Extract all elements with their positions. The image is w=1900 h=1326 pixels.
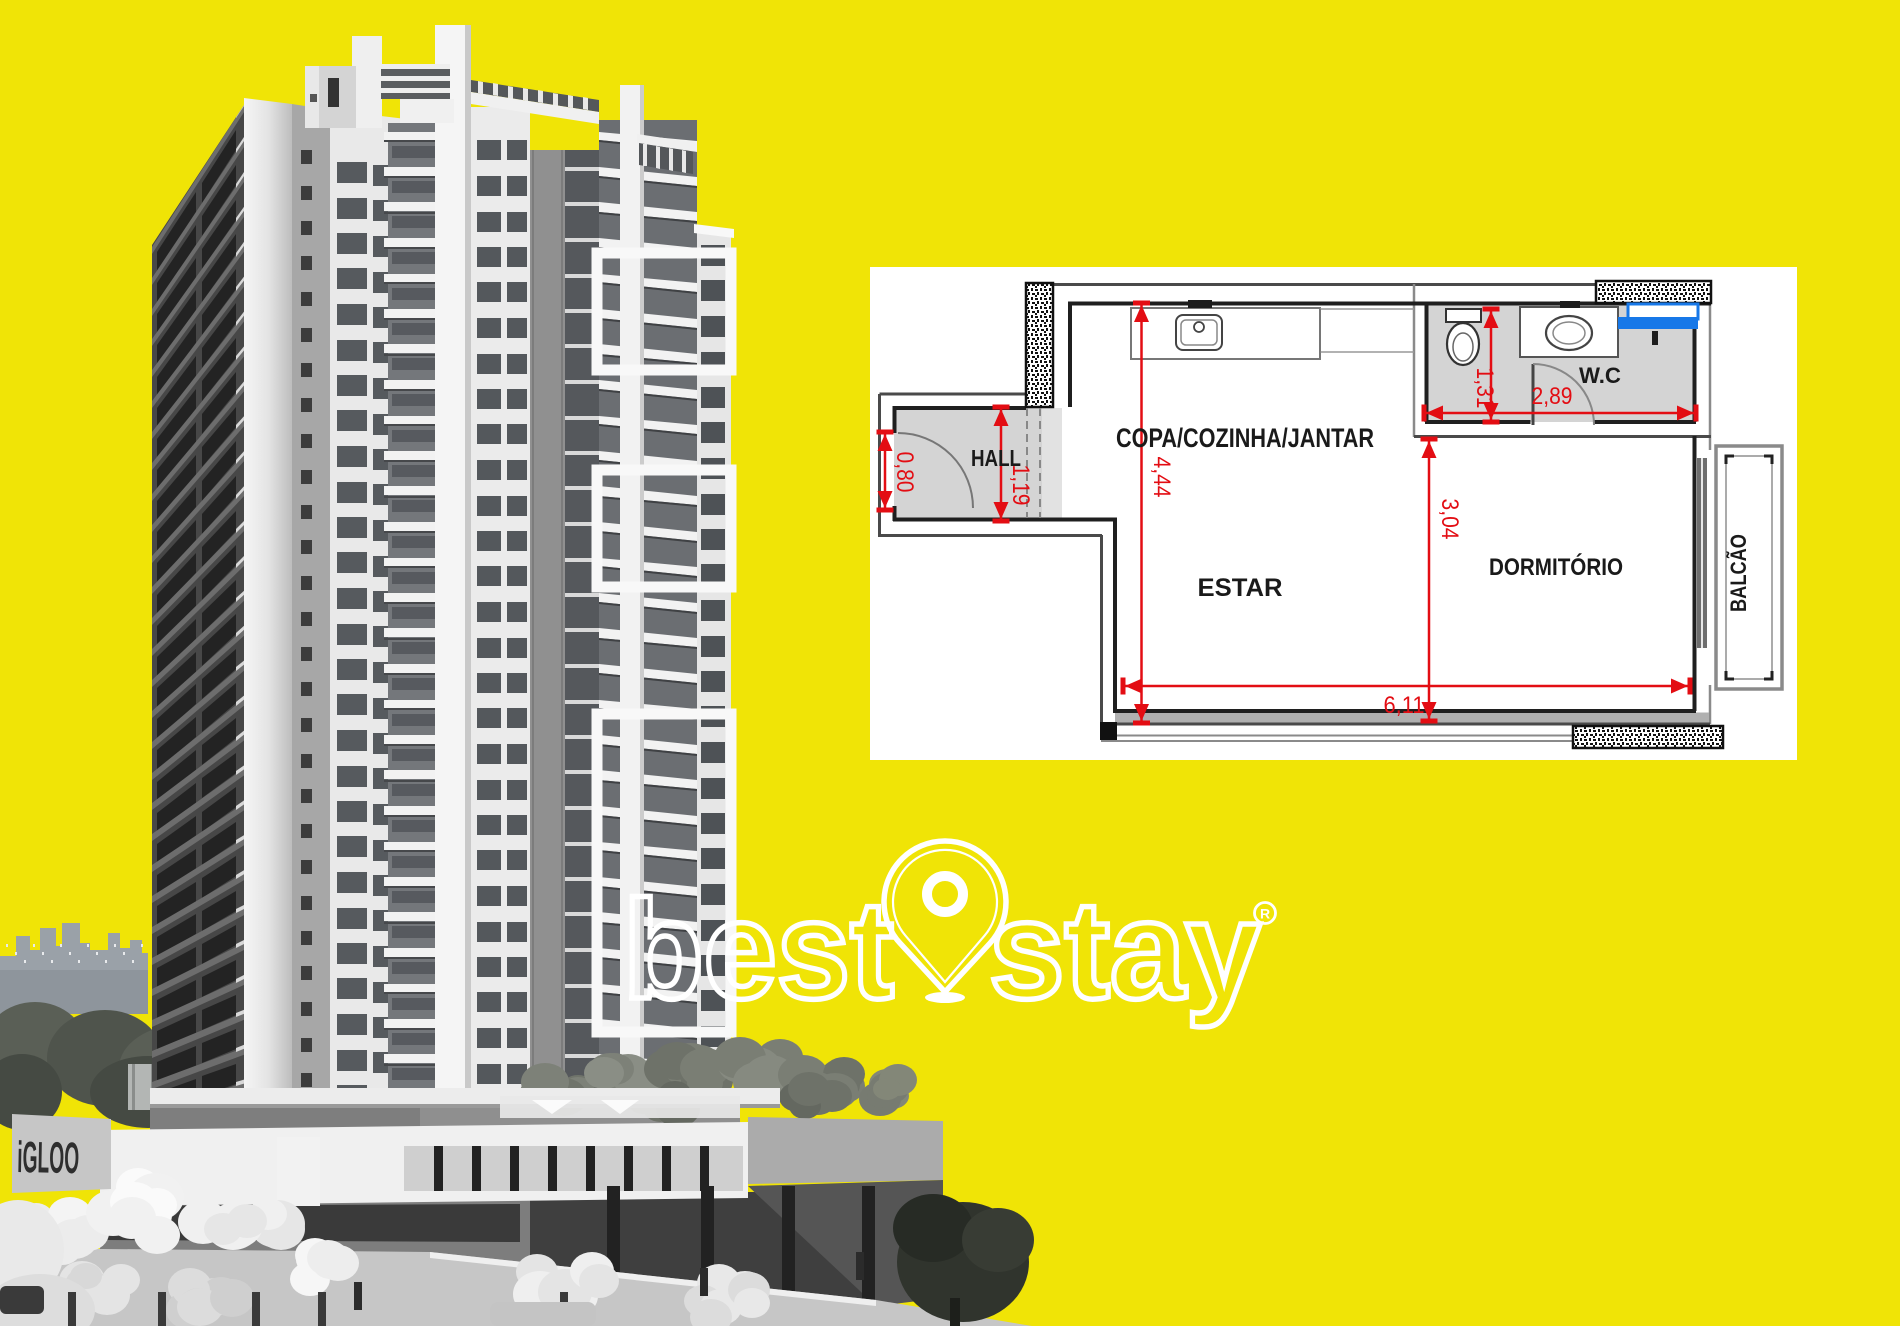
- svg-text:R: R: [1260, 906, 1270, 922]
- svg-text:BALCÃO: BALCÃO: [1726, 534, 1751, 612]
- svg-text:iGLOO: iGLOO: [17, 1133, 80, 1183]
- svg-text:6,11: 6,11: [1384, 692, 1425, 719]
- svg-text:best: best: [623, 871, 894, 1028]
- svg-text:W.C: W.C: [1579, 363, 1621, 388]
- svg-text:0,80: 0,80: [891, 452, 918, 493]
- svg-text:stay: stay: [989, 871, 1261, 1028]
- svg-text:2,89: 2,89: [1532, 383, 1573, 410]
- svg-text:DORMITÓRIO: DORMITÓRIO: [1489, 553, 1623, 581]
- svg-text:4,44: 4,44: [1148, 457, 1175, 498]
- svg-text:1,31: 1,31: [1471, 368, 1498, 409]
- svg-text:COPA/COZINHA/JANTAR: COPA/COZINHA/JANTAR: [1116, 423, 1374, 453]
- svg-text:3,04: 3,04: [1436, 499, 1463, 540]
- svg-text:HALL: HALL: [971, 445, 1021, 471]
- svg-text:ESTAR: ESTAR: [1198, 574, 1283, 602]
